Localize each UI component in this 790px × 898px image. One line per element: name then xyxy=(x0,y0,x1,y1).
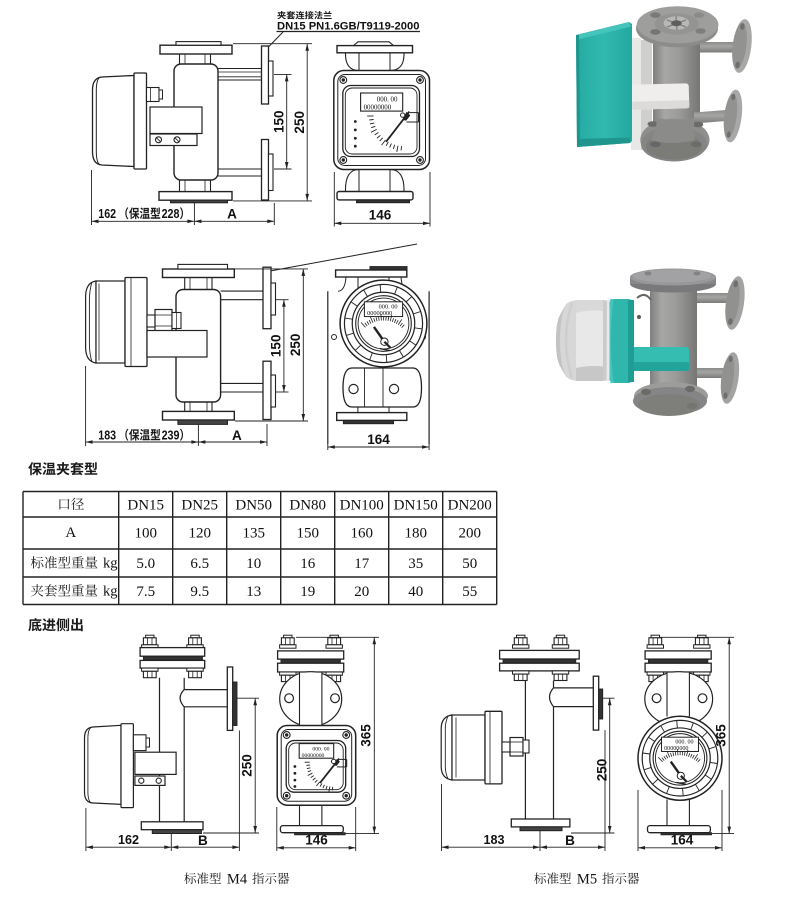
svg-text:162: 162 xyxy=(118,833,139,847)
svg-text:35: 35 xyxy=(408,556,423,572)
svg-text:150: 150 xyxy=(296,526,319,542)
svg-text:kg: kg xyxy=(103,556,118,572)
svg-text:180: 180 xyxy=(404,526,427,542)
svg-text:183: 183 xyxy=(98,429,116,443)
svg-text:000. 00: 000. 00 xyxy=(675,739,693,745)
svg-text:000. 00: 000. 00 xyxy=(377,96,398,103)
svg-text:DN80: DN80 xyxy=(289,498,326,514)
svg-text:164: 164 xyxy=(671,833,694,848)
svg-text:5.0: 5.0 xyxy=(136,556,155,572)
svg-text:A: A xyxy=(227,207,237,222)
svg-text:00000000: 00000000 xyxy=(364,105,392,112)
svg-text:200: 200 xyxy=(458,526,481,542)
svg-text:150: 150 xyxy=(272,110,287,133)
svg-text:DN15: DN15 xyxy=(127,498,164,514)
svg-text:100: 100 xyxy=(134,526,157,542)
svg-text:135: 135 xyxy=(242,526,265,542)
svg-text:13: 13 xyxy=(246,584,261,600)
svg-text:183: 183 xyxy=(483,833,504,847)
svg-text:250: 250 xyxy=(292,111,307,134)
svg-text:250: 250 xyxy=(240,754,255,777)
svg-text:A: A xyxy=(232,428,242,443)
svg-text:239: 239 xyxy=(162,429,180,443)
svg-text:000. 00: 000. 00 xyxy=(312,746,329,752)
svg-text:M4: M4 xyxy=(227,872,248,888)
svg-text:DN200: DN200 xyxy=(448,498,492,514)
svg-text:19: 19 xyxy=(300,584,315,600)
svg-text:16: 16 xyxy=(300,556,316,572)
svg-text:160: 160 xyxy=(350,526,373,542)
svg-text:9.5: 9.5 xyxy=(190,584,209,600)
svg-text:kg: kg xyxy=(103,584,118,600)
svg-text:00000000: 00000000 xyxy=(302,753,325,759)
svg-text:DN15 PN1.6GB/T9119-2000: DN15 PN1.6GB/T9119-2000 xyxy=(277,21,419,33)
svg-text:365: 365 xyxy=(359,724,374,747)
svg-text:164: 164 xyxy=(367,432,390,447)
svg-text:DN50: DN50 xyxy=(235,498,272,514)
svg-text:B: B xyxy=(565,833,575,848)
svg-text:250: 250 xyxy=(594,759,609,782)
svg-text:7.5: 7.5 xyxy=(136,584,155,600)
svg-text:6.5: 6.5 xyxy=(190,556,209,572)
svg-text:55: 55 xyxy=(462,584,477,600)
svg-text:40: 40 xyxy=(408,584,423,600)
svg-text:00000000: 00000000 xyxy=(664,746,688,752)
svg-text:250: 250 xyxy=(288,334,303,357)
svg-text:B: B xyxy=(198,833,208,848)
svg-text:146: 146 xyxy=(305,833,328,848)
svg-text:A: A xyxy=(65,525,76,541)
svg-text:DN150: DN150 xyxy=(394,498,438,514)
svg-text:DN25: DN25 xyxy=(181,498,218,514)
svg-text:50: 50 xyxy=(462,556,477,572)
svg-text:20: 20 xyxy=(354,584,369,600)
svg-text:146: 146 xyxy=(369,208,392,223)
svg-text:228: 228 xyxy=(162,207,180,221)
svg-text:10: 10 xyxy=(246,556,261,572)
svg-text:162: 162 xyxy=(98,207,116,221)
svg-text:150: 150 xyxy=(269,335,284,358)
svg-text:DN100: DN100 xyxy=(340,498,384,514)
svg-text:00000000: 00000000 xyxy=(367,310,392,317)
svg-text:17: 17 xyxy=(354,556,370,572)
svg-text:M5: M5 xyxy=(577,872,597,888)
svg-text:120: 120 xyxy=(188,526,211,542)
svg-text:365: 365 xyxy=(714,724,729,747)
